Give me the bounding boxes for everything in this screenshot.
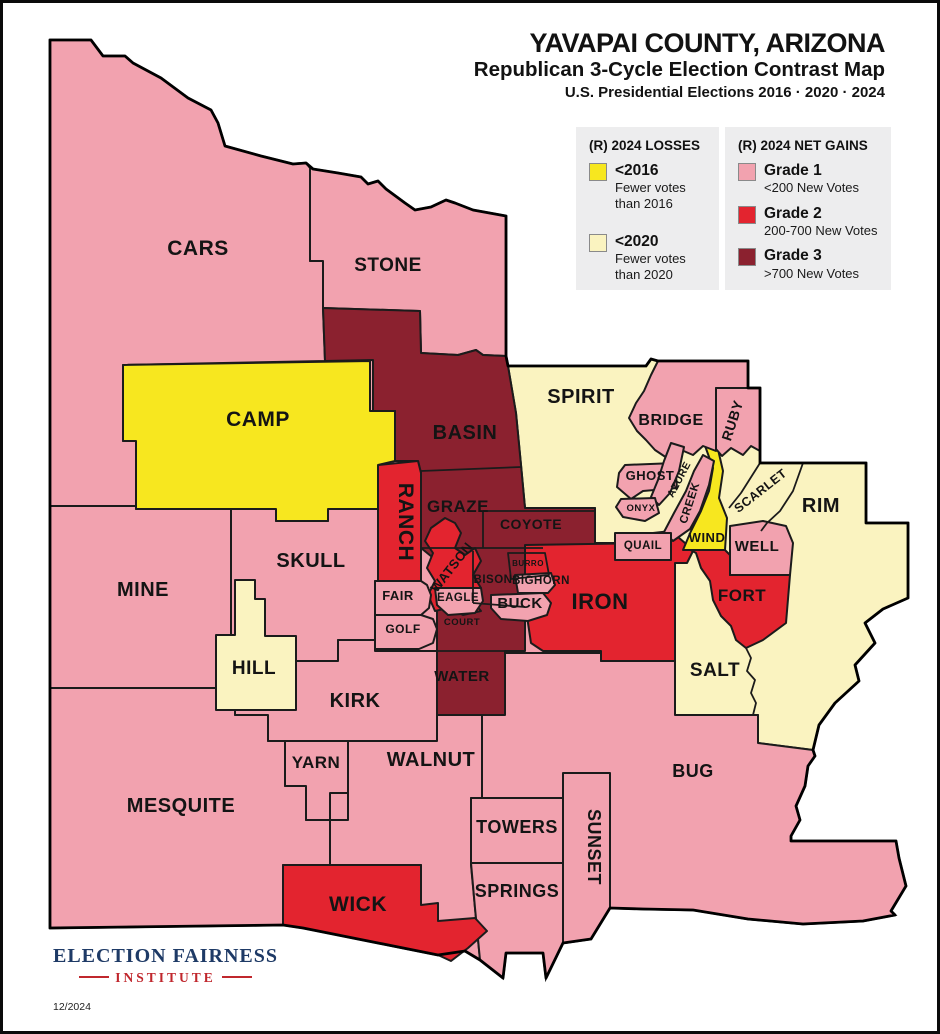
label-well: WELL [735,538,780,555]
legend-item: <2016 Fewer votes than 2016 [589,162,711,211]
legend-desc: <200 New Votes [764,180,859,195]
legend-desc: >700 New Votes [764,266,859,281]
label-springs: SPRINGS [475,881,560,901]
page-title: YAVAPAI COUNTY, ARIZONA [474,29,885,57]
label-buck: BUCK [497,595,542,612]
swatch-grade3 [738,248,756,266]
label-court: COURT [444,617,480,628]
swatch-lt2016 [589,163,607,181]
swatch-lt2020 [589,234,607,252]
title-block: YAVAPAI COUNTY, ARIZONA Republican 3-Cyc… [474,29,885,102]
legend-item: <2020 Fewer votes than 2020 [589,233,711,282]
label-salt: SALT [690,660,740,681]
label-kirk: KIRK [330,690,381,712]
label-hill: HILL [232,658,276,679]
map-page: CARSSTONECAMPBASINSPIRITBRIDGERUBYGHOSTA… [0,0,940,1034]
page-subtitle2: U.S. Presidential Elections 2016 · 2020 … [474,83,885,103]
label-ranch: RANCH [394,483,417,561]
label-skull: SKULL [276,550,345,572]
label-burro: BURRO [512,559,544,568]
label-mine: MINE [117,579,169,601]
label-quail: QUAIL [624,540,662,552]
org-institute: INSTITUTE [115,970,216,985]
legend-label: Grade 2 [764,205,822,222]
label-basin: BASIN [433,422,498,444]
footer: ELECTION FAIRNESS INSTITUTE 12/2024 [53,945,278,1013]
label-bug: BUG [672,761,714,781]
label-walnut: WALNUT [387,749,476,771]
label-eagle: EAGLE [437,592,479,604]
legend-losses-title: (R) 2024 LOSSES [589,138,711,153]
org-institute-row: INSTITUTE [53,969,278,987]
legend-gains: (R) 2024 NET GAINS Grade 1 <200 New Vote… [725,127,891,290]
legend-label: <2020 [615,233,659,250]
legend-item: Grade 1 <200 New Votes [738,162,883,196]
swatch-grade2 [738,206,756,224]
label-graze: GRAZE [427,497,489,516]
legend-desc: Fewer votes [615,180,686,195]
label-bighorn: BIGHORN [512,575,570,587]
label-fair: FAIR [382,588,414,603]
label-wind: WIND [689,530,726,545]
legend-item: Grade 3 >700 New Votes [738,247,883,281]
legend-desc: than 2020 [615,267,673,282]
label-coyote: COYOTE [500,516,562,532]
label-towers: TOWERS [476,817,558,837]
legend-losses: (R) 2024 LOSSES <2016 Fewer votes than 2… [576,127,719,290]
legend-desc: Fewer votes [615,251,686,266]
label-fort: FORT [718,586,766,605]
label-camp: CAMP [226,408,290,431]
org-name: ELECTION FAIRNESS [53,945,278,968]
legend-desc: 200-700 New Votes [764,223,877,238]
legend-label: <2016 [615,162,659,179]
legend-label: Grade 1 [764,162,822,179]
label-spirit: SPIRIT [547,386,614,408]
label-bridge: BRIDGE [638,412,703,429]
label-mesquite: MESQUITE [127,795,235,817]
label-yarn: YARN [292,753,341,772]
label-cars: CARS [167,237,229,260]
label-stone: STONE [354,255,422,276]
label-ghost: GHOST [626,468,675,483]
label-sunset: SUNSET [584,809,604,885]
legend-gains-title: (R) 2024 NET GAINS [738,138,883,153]
label-bison: BISON [474,574,513,586]
legend-desc: than 2016 [615,196,673,211]
rule-right [222,976,252,978]
map-date: 12/2024 [53,1001,278,1013]
label-iron: IRON [572,589,629,614]
label-water: WATER [434,668,490,685]
label-wick: WICK [329,893,387,916]
label-rim: RIM [802,495,840,517]
region-camp [123,361,395,521]
legend-item: Grade 2 200-700 New Votes [738,205,883,239]
rule-left [79,976,109,978]
swatch-grade1 [738,163,756,181]
label-golf: GOLF [385,622,420,636]
page-subtitle: Republican 3-Cycle Election Contrast Map [474,57,885,83]
label-onyx: ONYX [627,503,656,514]
legend-label: Grade 3 [764,247,822,264]
